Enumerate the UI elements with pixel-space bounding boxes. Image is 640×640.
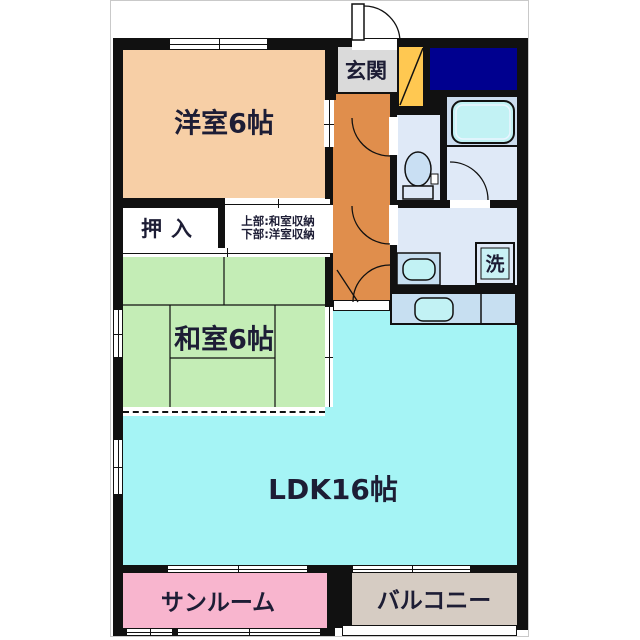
- shoe-cabinet-icon: [397, 45, 425, 108]
- window-ldk-bottom-right: [353, 566, 470, 572]
- closet-oshiire-label: 押入: [141, 213, 201, 243]
- sliding-door-closets: [123, 248, 330, 257]
- wall-hall-left-b: [325, 147, 333, 205]
- room-western-label: 洋室6帖: [174, 102, 274, 141]
- room-japanese-label: 和室6帖: [174, 318, 274, 357]
- hallway: [333, 93, 390, 303]
- sliding-door-japanese-ldk-h: [123, 407, 325, 416]
- window-japanese-left: [114, 310, 122, 357]
- entrance-label: 玄関: [345, 55, 387, 85]
- room-ldk-label: LDK16帖: [268, 468, 398, 508]
- closet-storage-label: 上部:和室収納 下部:洋室収納: [241, 215, 315, 241]
- window-sunroom-b: [178, 629, 320, 635]
- wall-hall-left-c: [325, 253, 333, 311]
- room-toilet: [397, 115, 440, 200]
- window-western-top: [170, 39, 267, 49]
- room-bath-lower: [447, 147, 517, 200]
- entrance-opening: [352, 39, 397, 50]
- washing-machine-label: 洗: [485, 250, 504, 277]
- window-sunroom-a: [127, 629, 172, 635]
- balcony-label: バルコニー: [377, 581, 492, 615]
- window-ldk-left: [114, 440, 122, 494]
- bath-door-gap: [450, 200, 490, 208]
- wall-hall-left-a: [325, 45, 336, 100]
- sunroom-label: サンルーム: [161, 583, 275, 617]
- wall-oshiire-top: [113, 198, 225, 208]
- storage-label-line2: 下部:洋室収納: [241, 228, 315, 241]
- balcony-railing: [342, 625, 517, 636]
- wall-toilet-bath: [440, 90, 447, 200]
- floor-plan: 洋室6帖 押入 上部:和室収納 下部:洋室収納 和室6帖 LDK16帖 玄関 洗…: [0, 0, 640, 640]
- washroom-door-gap: [389, 205, 398, 245]
- room-ldk-right: [333, 311, 517, 567]
- window-ldk-bottom-left: [168, 566, 307, 572]
- toilet-door-gap: [389, 117, 398, 155]
- wall-right: [517, 38, 528, 630]
- room-bath-upper: [447, 97, 517, 147]
- utility-space: [430, 48, 517, 90]
- wall-sun-balcony-divider: [327, 565, 352, 628]
- kitchen-counter: [390, 292, 517, 325]
- hallway-ldk-threshold: [333, 300, 390, 311]
- sliding-door-western: [324, 100, 334, 147]
- sliding-door-japanese-ldk-v: [325, 307, 333, 407]
- sliding-door-storage-top: [225, 199, 330, 208]
